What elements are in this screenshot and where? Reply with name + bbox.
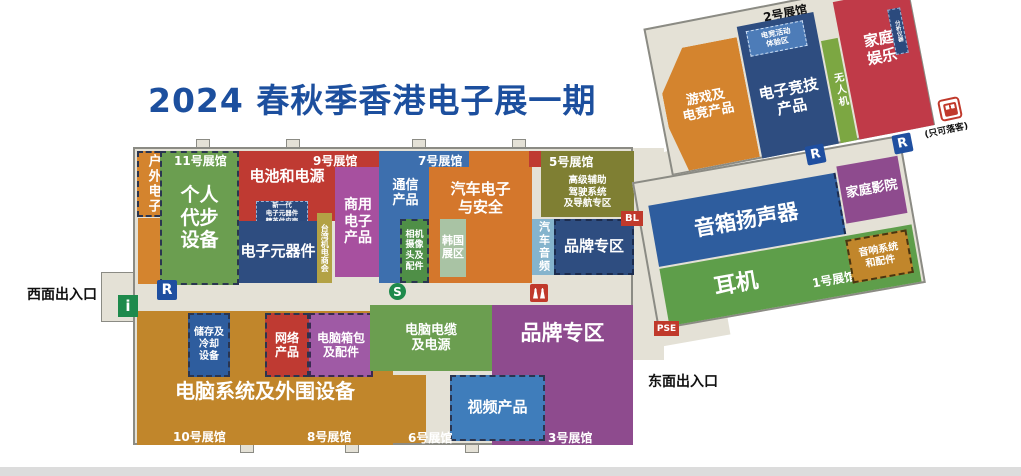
- restroom-icon: R: [891, 132, 913, 154]
- hall7-header-strip2: [469, 151, 529, 167]
- hall-6-label: 6号展馆: [408, 429, 452, 446]
- zone-computer-bags: 电脑箱包 及配件: [309, 313, 373, 377]
- bl-icon: BL: [621, 211, 643, 226]
- hall-9-label: 9号展馆: [313, 152, 357, 169]
- page-title: 2024 春秋季香港电子展一期: [148, 74, 596, 122]
- zone-camera-accessories: 相机 摄像 头及 配件: [400, 219, 429, 283]
- zone-esports-label: 电子竞技 产品: [758, 76, 824, 122]
- zone-esports-experience: 电竞活动 体验区: [746, 20, 808, 57]
- zone-storage-cooling: 储存及 冷却 设备: [188, 313, 230, 377]
- zone-korea-pavilion: 韩国展区: [440, 219, 466, 277]
- person-glyph: [540, 288, 545, 299]
- zone-outdoor-strip: [138, 218, 160, 284]
- hall-3-label: 3号展馆: [548, 429, 592, 446]
- zone-home-cinema: 家庭影院: [836, 156, 907, 224]
- restroom-icon: R: [804, 143, 826, 165]
- zone-communication-lower: [379, 219, 400, 283]
- restroom-icon: R: [157, 280, 177, 300]
- zone-personal-mobility: 个人 代步 设备: [160, 151, 239, 285]
- family-room-icon: [530, 284, 548, 302]
- hall-8-label: 8号展馆: [307, 428, 351, 445]
- zone-headphones-label: 耳机: [712, 268, 760, 301]
- hall-7-label: 7号展馆: [418, 152, 462, 169]
- service-icon: S: [389, 283, 406, 300]
- zone-network-products: 网络 产品: [265, 313, 309, 377]
- zone-computer-cables-power: 电脑电缆 及电源: [370, 305, 492, 371]
- zone-taiwan-association: 台湾机电商会: [317, 213, 332, 283]
- bus-glyph: [942, 101, 957, 116]
- hall5-header-strip: [529, 151, 541, 167]
- pse-icon: PSE: [654, 321, 679, 336]
- zone-communication-products: 通信 产品: [379, 167, 432, 219]
- person-glyph: [533, 288, 538, 299]
- zone-commercial-electronics: 商用 电子 产品: [335, 167, 381, 277]
- info-icon: i: [118, 295, 138, 317]
- east-entrance-label: 东面出入口: [648, 371, 718, 391]
- hall-11-label: 11号展馆: [174, 152, 227, 169]
- zone-electronic-components: 电子元器件: [239, 221, 317, 283]
- bus-dropoff-icon: [937, 96, 963, 122]
- west-entrance-label: 西面出入口: [27, 284, 97, 304]
- zone-car-audio: 汽车音频: [532, 219, 554, 275]
- hall-10-label: 10号展馆: [173, 428, 226, 445]
- main-building: 户外电子 个人 代步 设备 电池和电源 新一代 电子元器件 精英供应商 电子元器…: [133, 147, 633, 445]
- floor-plan-map: 2024 春秋季香港电子展一期 户外电子 个人 代步 设备 电池和电源 新一代 …: [0, 0, 1021, 476]
- zone-video-products: 视频产品: [450, 375, 545, 441]
- zone-brand-zone-top: 品牌专区: [554, 219, 634, 275]
- zone-battery-label: 电池和电源: [249, 168, 324, 186]
- zone-computer-systems-label: 电脑系统及外围设备: [175, 380, 355, 404]
- bottom-divider-bar: [0, 467, 1021, 476]
- hall-5-label: 5号展馆: [549, 153, 593, 170]
